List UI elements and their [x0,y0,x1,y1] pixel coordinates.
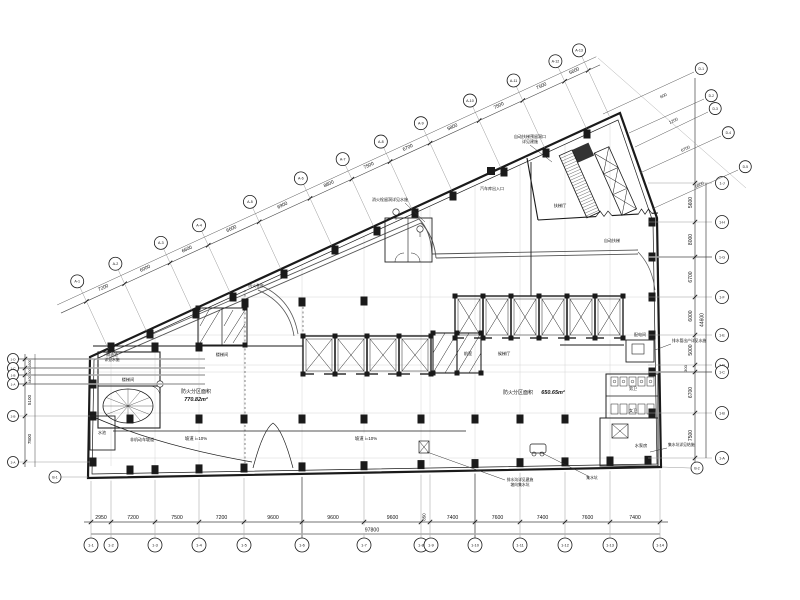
dimension-value: 9600 [327,515,339,521]
escalator-rung [582,202,595,208]
room-label: 自动扶梯 [604,237,620,243]
dim-tick [308,196,312,200]
leader-note: 详见水施 [104,357,119,362]
toilet-fixture [620,377,627,386]
escalator-hall-wall [538,217,596,220]
grid-bubble-label: 2-B [11,414,16,418]
leader-note: 隔油池 [106,352,118,357]
leader-note: 防火卷帘 [248,283,263,288]
grid-stem [424,129,452,190]
column [152,343,159,352]
ramp-label: 坡道 i=10% [185,435,207,442]
grid-bubble-label: 1-4 [196,542,202,547]
grid-stem [582,56,610,117]
floor-plan-drawing: 2950720075007200960096009600850740076007… [0,0,800,600]
car-symbol [530,444,546,453]
grid-bubble-label: 1-5 [241,542,247,547]
fan-grid-line [603,72,694,114]
column [565,294,570,299]
room-label: 男卫 [629,386,637,391]
column [481,294,486,299]
column [243,343,248,348]
dimension-value: 300 [683,364,688,371]
column [645,456,652,465]
grid-bubble-label: B-2 [694,466,699,470]
stair-flight-div [603,167,618,174]
room-label: 楼梯间 [122,376,135,383]
escalator-rung [569,172,582,178]
grid-bubble-label: D-2 [709,94,715,98]
column [584,130,591,139]
grid-bubble-label: 1-12 [561,542,569,547]
escalator-rung [565,164,578,170]
escalator-rung [580,197,593,203]
column [361,297,368,306]
fan-grid-line [640,136,721,173]
elevator-door-gap [410,373,420,376]
room-label: 楼梯间 [216,351,229,358]
leader-note: 消火栓留洞详见水施 [372,196,408,202]
column [333,334,338,339]
column [607,457,614,466]
dim-tick [428,141,432,145]
escalator-rung [573,180,586,186]
dim-tick [257,220,261,224]
stair2-hatch [233,324,245,343]
escalator-rung [585,208,598,214]
column [431,371,436,376]
grid-bubble-label: A-6 [298,177,304,181]
dimension-value: 9600 [267,515,279,521]
grid-bubble-label: 1-9 [428,542,434,547]
grid-stem [164,249,192,310]
column [509,336,514,341]
equipment-tag [417,226,423,232]
grid-bubble-label: A-10 [466,99,474,103]
grid-bubble-label: 1-H [719,220,725,224]
grid-bubble-label: 1-3 [152,542,158,547]
leader-note: 排水管出户详见水施 [672,338,706,343]
column [196,343,201,348]
corridor-wall [436,254,638,258]
stair-tread [128,391,141,406]
grid-stem [345,165,373,226]
column [365,372,370,377]
grid-bubble-label: 1-C [719,370,725,374]
dimension-value: 5100 [27,394,32,405]
grid-stem [558,67,586,128]
escalator-rung [584,205,597,211]
dim-tick [477,118,481,122]
room-label: 候梯厅 [498,350,511,357]
column [196,415,203,424]
elevator-door-gap [492,337,502,340]
column [230,293,237,302]
grid-bubble-label: A-3 [158,241,164,245]
grid-stem [473,106,501,167]
grid-bubble-label: A-7 [340,157,346,161]
escalator-rung [571,177,584,183]
dimension-value: 6700 [688,271,694,282]
room-label: 水泵房 [635,442,648,449]
escalator-rung [563,158,576,164]
column [332,246,339,255]
toilet-fixture-bowl [613,380,616,383]
leader-note: 排水沟详见建施 [507,477,534,482]
grid-bubble-label: A-4 [196,224,202,228]
column [241,464,248,473]
dimension-value: 7400 [629,515,641,521]
leader-note: 坡向集水坑 [511,482,530,487]
toilet-fixture [638,377,645,386]
dimension-value: 7600 [582,515,594,521]
fire-zone-label: 防火分区面积 [503,389,533,396]
grid-bubble-label: 1-F [719,295,725,299]
room-label: 配电间 [634,331,646,337]
fan-grid-line [635,112,708,147]
shaft-solid [487,167,495,175]
column [147,330,154,339]
stair-tread [116,391,129,406]
grid-stem [253,208,281,269]
grid-bubble-label: A-8 [378,140,384,144]
room-label: 女卫 [629,407,637,413]
grid-bubble-label: A-12 [552,60,560,64]
dimension-value: 7500 [171,515,183,521]
column [127,415,134,424]
dimension-value: 7400 [537,515,549,521]
stair-tread [128,406,150,415]
grid-bubble-label: A-5 [247,200,253,204]
fire-zone-label: 防火分区面积 [181,388,211,395]
elevator-door-gap [378,373,388,376]
car-wheel [532,452,536,456]
dim-tick [350,177,354,181]
toilet-fixture [620,404,627,414]
car-wheel [540,452,544,456]
grid-bubble-label: 1-D [11,357,17,361]
toilet-fixture [629,377,636,386]
grid-bubble-label: 1-B [11,373,16,377]
corridor-wall [432,250,638,254]
grid-bubble-label: D-5 [743,165,749,169]
dimension-line [61,65,600,313]
grid-bubble-label: 1-J [719,181,724,185]
drive-lane-split [253,423,293,468]
escalator-machine [572,143,594,163]
toilet-fixture-bowl [622,380,625,383]
escalator-rung [581,199,594,205]
elevator-door-gap [548,337,558,340]
leader-line [427,452,505,480]
column [299,298,306,307]
grid-bubble-label: 1-7 [361,542,367,547]
grid-bubble-label: D-1 [699,67,705,71]
door-arc [411,253,420,262]
grid-bubble-label: 1-B [719,411,725,415]
column [453,294,458,299]
dimension-value: 1600 [28,360,32,368]
column [450,192,457,201]
leader-note: 集水坑详见结施 [668,442,695,447]
leader-line [655,344,671,350]
column [299,462,306,471]
elevator-door-gap [576,337,586,340]
stair-flight-div [613,188,628,195]
column [479,371,484,376]
stair2-hatch [200,310,220,343]
column [621,336,626,341]
leader-note: 详见建施 [522,138,538,144]
grid-bubble-label: A-11 [510,79,517,83]
column [241,415,248,424]
dimension-value: 6700 [688,387,694,398]
grid-stem [80,287,108,348]
escalator-rung [576,188,589,194]
column [196,306,201,311]
stair2-block [198,308,247,345]
fan-grid-line [629,99,704,133]
column [501,168,508,177]
stair-tread [128,398,150,407]
storage-rooms [385,218,432,262]
grid-bubble-label: B-1 [52,475,57,479]
grid-bubble-label: 1-10 [471,542,480,547]
toilet-fixture [611,377,618,386]
dim-tick [521,98,525,102]
grid-bubble-label: 1-2 [108,542,114,547]
grid-bubble-label: 1-6 [299,542,305,547]
column [108,343,115,352]
column [281,270,288,279]
column [301,334,306,339]
grid-bubble-label: 1-11 [516,542,524,547]
dim-tick [562,79,566,83]
toilet-fixture [638,404,645,414]
power-room [626,340,654,362]
leader-line [540,452,588,476]
column [374,227,381,236]
room-label: 水池 [98,429,106,435]
shaft-hatch [457,333,469,353]
escalator-rung [579,194,592,200]
grid-bubble-label: A-9 [418,121,424,125]
escalator-hall-wall [527,158,538,220]
dimension-value: 1200 [668,116,679,125]
column [301,372,306,377]
dim-tick [206,243,210,247]
column [431,331,436,336]
stair2-hatch [224,310,245,343]
dimension-value: 6700 [680,144,691,153]
power-equipment [632,344,644,354]
fire-zone-area: 770.82m² [184,396,208,403]
aux-leader [662,467,690,468]
column [517,458,524,467]
stair-tread [116,406,129,421]
column [543,149,550,158]
grid-bubble-label: A-1 [74,280,80,284]
column [593,336,598,341]
toilet-fixture-bowl [640,380,643,383]
column [537,336,542,341]
toilet-fixture [647,377,654,386]
column [418,460,425,469]
column [333,372,338,377]
column [593,294,598,299]
grid-bubble-label: 1-8 [418,542,424,547]
stair2-hatch [224,310,233,326]
dimension-value: 7400 [447,515,459,521]
dim-tick [168,261,172,265]
grid-stem [304,184,332,245]
column [517,415,524,424]
door-arc [395,253,404,262]
dimension-value: 2950 [95,515,107,521]
dimension-value: 8000 [688,234,694,245]
column [479,331,484,336]
column [397,372,402,377]
escalator-rung [562,155,575,161]
shaft-hatch [433,333,457,373]
dimension-value: 7600 [492,515,504,521]
dimension-value: 600 [659,92,668,100]
overall-dimension-value: 97800 [365,528,380,534]
overall-dimension-value: 44600 [700,313,706,327]
leader-note: 汽车库出入口 [480,185,504,191]
dimension-value: 7200 [127,515,139,521]
escalator-rung [574,183,587,189]
room-label: 扶梯厅 [554,202,567,209]
escalator-rung [568,169,581,175]
dimension-value: 850 [422,513,427,521]
drawing-sheet: 2950720075007200960096009600850740076007… [0,0,800,600]
stair-tread [106,398,128,407]
equipment-tag [393,209,399,215]
column [397,334,402,339]
shaft-hatch [445,353,457,373]
dim-tick [122,282,126,286]
column [418,415,425,424]
column [361,461,368,470]
column [127,466,134,475]
column [562,415,569,424]
column [562,457,569,466]
dim-tick [84,299,88,303]
column [152,465,159,474]
ramp-label: 坡道 i=10% [355,435,377,442]
lane-edge-curve [262,286,298,334]
column [455,371,460,376]
fire-zone-area: 650.65m² [541,389,565,396]
column [455,331,460,336]
elevator-door-gap [604,337,614,340]
dimension-line [57,57,596,305]
grid-stem [202,231,230,292]
elevator-door-gap [346,373,356,376]
column [361,415,368,424]
escalator-rung [575,186,588,192]
column [621,294,626,299]
toilet-fixture [611,404,618,414]
dim-tick [388,159,392,163]
dimension-value: 300 [28,369,32,375]
grid-bubble-label: 1-G [719,255,725,259]
dimension-value: 5000 [688,344,694,355]
stair-tread [106,406,128,415]
elevator-door-gap [520,337,530,340]
dim-tick [586,68,590,72]
dimension-value: 7800 [27,433,32,444]
grid-bubble-label: 1-E [719,333,725,337]
grid-bubble-label: D-4 [726,131,732,135]
column [365,334,370,339]
column [565,336,570,341]
column [472,459,479,468]
room-label: 前室 [464,350,472,357]
room-label: 非机动车坡道 [130,436,154,442]
grid-bubble-label: 1-A [719,456,725,460]
dimension-value: 4400 [28,376,32,384]
grid-stem [118,270,146,331]
dimension-value: 7200 [216,515,228,521]
toilet-fixture-bowl [649,380,652,383]
escalator-rung [578,191,591,197]
column [537,294,542,299]
escalator-rung [567,166,580,172]
grid-bubble-label: 1-13 [606,542,614,547]
dimension-value: 7500 [688,430,694,441]
dimension-value: 5600 [688,197,694,208]
escalator-rung [560,153,573,159]
column [509,294,514,299]
escalator-rung [564,161,577,167]
toilet-fixture-bowl [631,380,634,383]
column [472,415,479,424]
grid-bubble-label: D-3 [713,107,719,111]
shaft-hatch [433,333,445,353]
grid-bubble-label: 1-1 [88,542,94,547]
grid-bubble-label: 1-14 [656,542,665,547]
dimension-value: 6000 [688,310,694,321]
grid-bubble-label: A-13 [575,49,583,53]
elevator-door-gap [314,373,324,376]
double-door-symbol [596,211,612,217]
dimension-value: 9600 [387,515,399,521]
column [243,306,248,311]
escalator-rung [570,175,583,181]
grid-bubble-label: A-2 [113,262,119,266]
column [299,415,306,424]
column [196,464,203,473]
column [90,458,97,467]
